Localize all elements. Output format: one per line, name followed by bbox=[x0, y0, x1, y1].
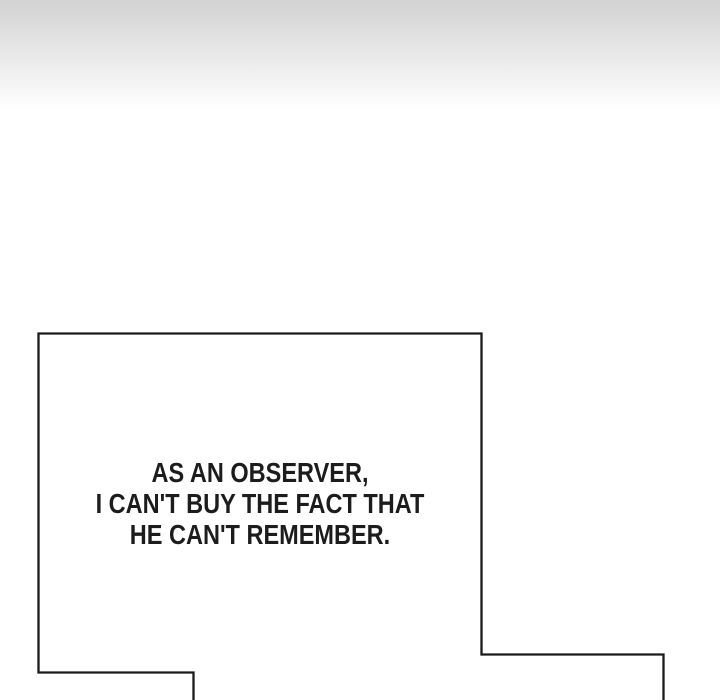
speech-text: AS AN OBSERVER, I CAN'T BUY THE FACT THA… bbox=[74, 457, 447, 550]
comic-page: AS AN OBSERVER, I CAN'T BUY THE FACT THA… bbox=[0, 0, 720, 700]
speech-line-2: I CAN'T BUY THE FACT THAT bbox=[74, 488, 447, 519]
speech-line-3: HE CAN'T REMEMBER. bbox=[74, 519, 447, 550]
panel-outline bbox=[0, 0, 720, 700]
speech-line-1: AS AN OBSERVER, bbox=[74, 457, 447, 488]
